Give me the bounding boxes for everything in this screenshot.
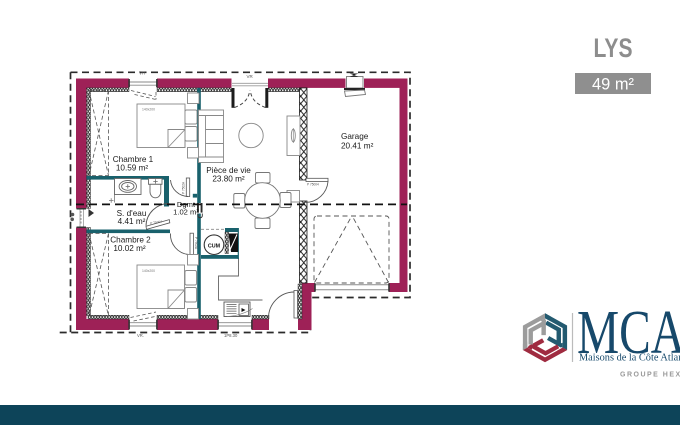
svg-text:Garage: Garage (341, 132, 369, 141)
svg-text:1P8.30: 1P8.30 (224, 333, 238, 338)
svg-text:23.80 m²: 23.80 m² (212, 175, 245, 184)
svg-text:10.59 m²: 10.59 m² (116, 164, 149, 173)
svg-text:VR.: VR. (137, 333, 144, 338)
svg-text:20.41 m²: 20.41 m² (341, 142, 374, 151)
svg-text:CUM: CUM (208, 244, 221, 250)
svg-text:49 m²: 49 m² (592, 75, 634, 94)
svg-text:Maisons de la Côte Atlantique: Maisons de la Côte Atlantique (579, 353, 680, 364)
svg-text:LYS: LYS (594, 33, 633, 63)
svg-text:4.41 m²: 4.41 m² (118, 217, 146, 226)
svg-text:1.02 m²: 1.02 m² (173, 208, 199, 217)
svg-text:VR: VR (247, 74, 254, 79)
svg-text:140x200: 140x200 (142, 108, 155, 112)
svg-text:140x200: 140x200 (142, 269, 155, 273)
svg-text:P 7502A: P 7502A (182, 181, 186, 194)
svg-text:GROUPE HEXA: GROUPE HEXA (620, 372, 680, 379)
svg-text:VR: VR (139, 71, 146, 76)
svg-text:10.02 m²: 10.02 m² (113, 244, 146, 253)
svg-text:P 75004: P 75004 (307, 183, 319, 187)
svg-text:P 7502A: P 7502A (194, 237, 198, 250)
